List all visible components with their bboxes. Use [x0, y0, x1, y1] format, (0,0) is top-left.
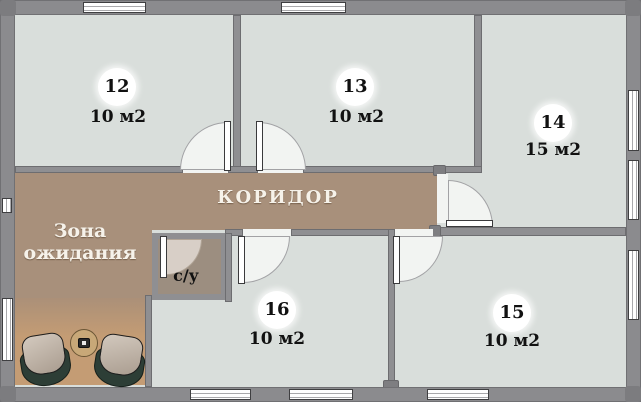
- room-14-number-badge: 14: [534, 104, 572, 142]
- room-14-number: 14: [540, 112, 565, 133]
- room-12-number-badge: 12: [98, 68, 136, 106]
- table-object-icon: [78, 338, 90, 348]
- floor-plan: 12 10 м2 13 10 м2 14 15 м2 15 10 м2 16 1…: [0, 0, 641, 402]
- corridor-label: КОРИДОР: [148, 187, 408, 208]
- wall-corridor-top-a: [15, 166, 183, 173]
- room-14-area: 15 м2: [503, 140, 603, 160]
- door-opening-room15: [395, 229, 433, 236]
- waiting-area-label-line1: Зона: [18, 220, 142, 242]
- room-15-number-badge: 15: [493, 294, 531, 332]
- room-16-number-badge: 16: [258, 291, 296, 329]
- window: [2, 198, 12, 213]
- wall-corner: [0, 0, 16, 16]
- wall-room14-room15: [433, 227, 626, 236]
- wall-corridor-top-c: [303, 166, 482, 173]
- room-13-area: 10 м2: [306, 107, 406, 127]
- bathroom-label: с/у: [166, 266, 206, 285]
- coffee-table-icon: [70, 329, 98, 357]
- door-opening-room16: [243, 229, 291, 236]
- armchair-right-icon: [91, 331, 149, 390]
- waiting-area-label-line2: ожидания: [18, 242, 142, 264]
- wall-room12-room13: [233, 15, 241, 173]
- door-leaf-room14: [446, 220, 493, 227]
- wall-corner: [0, 386, 16, 402]
- room-13-number-badge: 13: [336, 68, 374, 106]
- window: [628, 250, 639, 320]
- wall-corridor-bottom-b: [291, 229, 395, 236]
- door-leaf-room12: [224, 121, 231, 171]
- door-leaf-room15: [393, 236, 400, 284]
- room-16-number: 16: [264, 299, 289, 320]
- armchair-left-icon: [16, 330, 74, 389]
- window: [281, 2, 346, 13]
- waiting-area-label: Зона ожидания: [18, 220, 142, 264]
- room-15-area: 10 м2: [462, 331, 562, 351]
- room-16-area: 10 м2: [227, 329, 327, 349]
- room-15-number: 15: [499, 302, 524, 323]
- door-opening-room14: [437, 174, 448, 223]
- room-13-number: 13: [342, 76, 367, 97]
- window: [2, 298, 13, 361]
- door-leaf-room16: [238, 236, 245, 284]
- table-object-dot: [82, 341, 86, 345]
- room-12-area: 10 м2: [68, 107, 168, 127]
- wall-room16-bathroom: [225, 233, 232, 302]
- window: [289, 389, 353, 400]
- window: [190, 389, 251, 400]
- window: [628, 160, 639, 220]
- wall-corner: [625, 0, 641, 16]
- wall-room13-room14: [474, 15, 482, 173]
- wall-corridor-top-b: [228, 166, 258, 173]
- room-12-number: 12: [104, 76, 129, 97]
- door-leaf-room13: [256, 121, 263, 171]
- window: [83, 2, 146, 13]
- wall-corner: [625, 386, 641, 402]
- window: [628, 90, 639, 151]
- window: [427, 389, 489, 400]
